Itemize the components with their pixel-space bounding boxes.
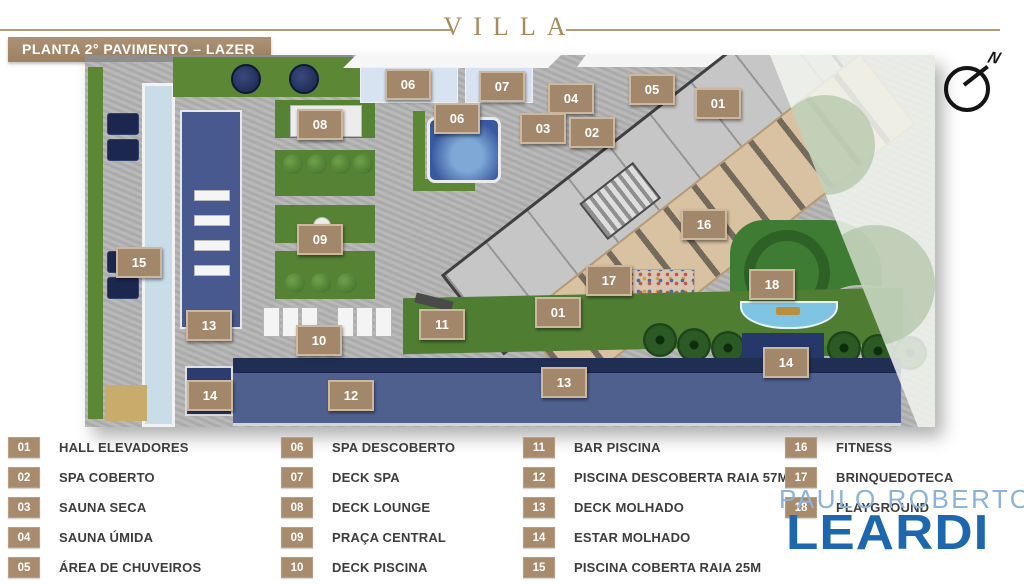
legend-number-chip: 15 <box>523 557 555 578</box>
in-water-lounger <box>194 265 230 276</box>
legend-number-chip: 13 <box>523 497 555 518</box>
legend-number-chip: 06 <box>281 437 313 458</box>
legend-number-chip: 10 <box>281 557 313 578</box>
umbrella-table <box>289 64 319 94</box>
indoor-lounger <box>107 113 139 135</box>
legend-label: HALL ELEVADORES <box>59 440 189 455</box>
floorplan-canvas: 0607060403020501080910151314121101171316… <box>85 55 935 427</box>
legend-number-chip: 07 <box>281 467 313 488</box>
legend-label: SAUNA SECA <box>59 500 146 515</box>
top-garden-band <box>173 57 365 97</box>
plan-tag-10: 10 <box>296 325 342 356</box>
legend-label: DECK LOUNGE <box>332 500 430 515</box>
legend-label: PISCINA DESCOBERTA RAIA 57M <box>574 470 789 485</box>
palm-tree <box>643 323 677 357</box>
legend-item-06: 06 SPA DESCOBERTO <box>281 438 455 457</box>
sun-lounger <box>263 307 280 337</box>
plan-tag-09: 09 <box>297 224 343 255</box>
legend-item-05: 05 ÁREA DE CHUVEIROS <box>8 558 201 577</box>
palm-tree <box>677 328 711 362</box>
sun-lounger <box>356 307 373 337</box>
plan-tag-15: 15 <box>116 247 162 278</box>
legend-item-16: 16 FITNESS <box>785 438 953 457</box>
legend-number-chip: 08 <box>281 497 313 518</box>
legend-item-14: 14 ESTAR MOLHADO <box>523 528 789 547</box>
plan-tag-08: 08 <box>297 109 343 140</box>
plan-tag-06: 06 <box>385 69 431 100</box>
floorplan-page: VILLA PLANTA 2° PAVIMENTO – LAZER N <box>0 0 1024 584</box>
legend-number-chip: 09 <box>281 527 313 548</box>
plan-tag-14: 14 <box>187 380 233 411</box>
legend-number-chip: 03 <box>8 497 40 518</box>
compass-north-label: N <box>985 49 1003 68</box>
legend-number-chip: 16 <box>785 437 817 458</box>
legend-item-11: 11 BAR PISCINA <box>523 438 789 457</box>
legend-label: SAUNA ÚMIDA <box>59 530 153 545</box>
legend-number-chip: 14 <box>523 527 555 548</box>
legend-item-13: 13 DECK MOLHADO <box>523 498 789 517</box>
in-water-lounger <box>194 240 230 251</box>
legend-item-08: 08 DECK LOUNGE <box>281 498 455 517</box>
legend-item-10: 10 DECK PISCINA <box>281 558 455 577</box>
plan-tag-13: 13 <box>541 367 587 398</box>
legend-label: SPA DESCOBERTO <box>332 440 455 455</box>
bush <box>311 273 331 293</box>
plan-tag-16: 16 <box>681 209 727 240</box>
bush <box>337 273 357 293</box>
plan-tag-06: 06 <box>434 103 480 134</box>
legend-label: PISCINA COBERTA RAIA 25M <box>574 560 761 575</box>
plan-tag-02: 02 <box>569 117 615 148</box>
plan-tag-14: 14 <box>763 347 809 378</box>
plan-tag-11: 11 <box>419 309 465 340</box>
legend-label: BAR PISCINA <box>574 440 661 455</box>
legend-label: DECK MOLHADO <box>574 500 684 515</box>
plan-tag-17: 17 <box>586 265 632 296</box>
legend-item-12: 12 PISCINA DESCOBERTA RAIA 57M <box>523 468 789 487</box>
legend-label: SPA COBERTO <box>59 470 155 485</box>
plan-tag-18: 18 <box>749 269 795 300</box>
legend-label: BRINQUEDOTECA <box>836 470 953 485</box>
compass-circle <box>944 66 990 112</box>
indoor-lounger <box>107 277 139 299</box>
plan-tag-05: 05 <box>629 74 675 105</box>
legend-number-chip: 12 <box>523 467 555 488</box>
compass-north-icon: N <box>942 48 1006 114</box>
indoor-lounger <box>107 139 139 161</box>
legend-number-chip: 02 <box>8 467 40 488</box>
legend-item-15: 15 PISCINA COBERTA RAIA 25M <box>523 558 789 577</box>
bush <box>307 154 327 174</box>
legend-number-chip: 11 <box>523 437 555 458</box>
plan-tag-12: 12 <box>328 380 374 411</box>
sand-area <box>105 385 147 421</box>
plan-tag-03: 03 <box>520 113 566 144</box>
in-water-lounger <box>194 215 230 226</box>
bush <box>331 154 351 174</box>
lounge-planter <box>275 251 375 299</box>
legend-number-chip: 04 <box>8 527 40 548</box>
header-rule-right <box>566 29 1000 31</box>
legend-item-01: 01 HALL ELEVADORES <box>8 438 201 457</box>
plan-tag-04: 04 <box>548 83 594 114</box>
bush <box>283 154 303 174</box>
header-rule-left <box>0 29 452 31</box>
legend-column-2: 06 SPA DESCOBERTO 07 DECK SPA 08 DECK LO… <box>281 438 455 584</box>
legend-label: DECK SPA <box>332 470 400 485</box>
wet-deck-pool <box>180 110 242 329</box>
in-water-lounger <box>194 190 230 201</box>
watermark-brand: LEARDI <box>786 505 989 561</box>
wet-lounge-bench <box>776 307 800 315</box>
plan-tag-13: 13 <box>186 310 232 341</box>
legend-column-3: 11 BAR PISCINA 12 PISCINA DESCOBERTA RAI… <box>523 438 789 584</box>
legend-item-07: 07 DECK SPA <box>281 468 455 487</box>
plan-tag-07: 07 <box>479 71 525 102</box>
legend-label: FITNESS <box>836 440 892 455</box>
bush <box>353 154 373 174</box>
legend-column-1: 01 HALL ELEVADORES 02 SPA COBERTO 03 SAU… <box>8 438 201 584</box>
plan-tag-01: 01 <box>535 297 581 328</box>
spa-garden-strip <box>413 111 425 185</box>
lounge-planter <box>275 150 375 196</box>
legend-item-04: 04 SAUNA ÚMIDA <box>8 528 201 547</box>
left-garden-strip <box>88 67 103 419</box>
legend-number-chip: 05 <box>8 557 40 578</box>
legend-label: ESTAR MOLHADO <box>574 530 690 545</box>
bush <box>285 273 305 293</box>
plan-tag-01: 01 <box>695 88 741 119</box>
brand-logo: VILLA <box>425 12 595 42</box>
legend-label: ÁREA DE CHUVEIROS <box>59 560 201 575</box>
legend-item-09: 09 PRAÇA CENTRAL <box>281 528 455 547</box>
legend-item-03: 03 SAUNA SECA <box>8 498 201 517</box>
legend-label: DECK PISCINA <box>332 560 428 575</box>
legend-number-chip: 01 <box>8 437 40 458</box>
umbrella-table <box>231 64 261 94</box>
legend-item-02: 02 SPA COBERTO <box>8 468 201 487</box>
sun-lounger <box>375 307 392 337</box>
legend-label: PRAÇA CENTRAL <box>332 530 446 545</box>
